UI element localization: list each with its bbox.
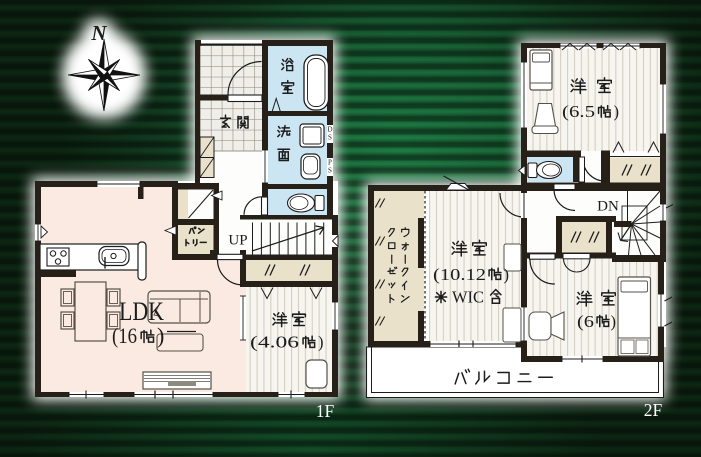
svg-text:1F: 1F [316,401,335,421]
svg-text:P: P [328,159,332,167]
svg-text:): ) [611,312,617,331]
svg-text:): ) [318,333,324,352]
svg-text:(4.06: (4.06 [250,333,299,352]
svg-text:UP: UP [228,233,247,249]
svg-text:(6: (6 [577,312,594,331]
svg-text:2F: 2F [644,400,663,420]
svg-text:D: D [327,126,332,134]
svg-text:(16: (16 [112,323,137,348]
svg-text:N: N [90,21,107,45]
svg-text:DN: DN [597,199,619,215]
svg-text:(10.12: (10.12 [433,265,486,284]
svg-text:): ) [504,265,510,284]
svg-text:): ) [157,323,164,348]
svg-text:(6.5: (6.5 [562,102,595,121]
svg-text:S: S [328,134,332,142]
svg-text:S: S [328,167,332,175]
svg-text:LDK: LDK [119,297,164,326]
svg-text:WIC: WIC [452,288,484,307]
svg-text:): ) [614,102,620,121]
